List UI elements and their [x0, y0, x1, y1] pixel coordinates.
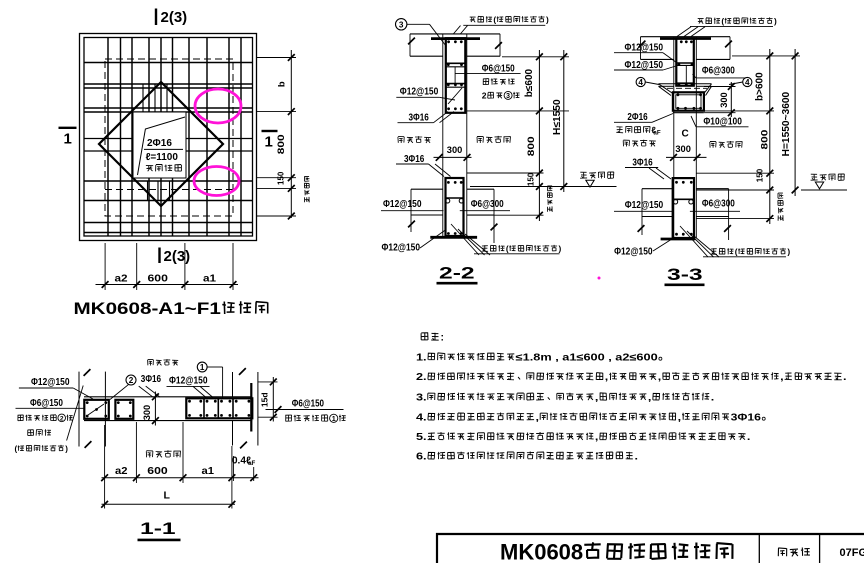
svg-text:,: ,	[605, 372, 609, 383]
svg-text:2-2: 2-2	[439, 264, 475, 283]
svg-text:): )	[559, 244, 562, 254]
svg-text:3-3: 3-3	[667, 265, 703, 284]
svg-text:3Φ16: 3Φ16	[632, 157, 653, 168]
svg-text:,: ,	[595, 432, 599, 443]
svg-text:,: ,	[648, 392, 652, 403]
svg-text:b: b	[276, 81, 287, 87]
svg-text:300: 300	[142, 405, 152, 421]
svg-text:3Φ16: 3Φ16	[731, 412, 762, 423]
svg-text:,: ,	[658, 372, 662, 383]
svg-text:Φ6@150: Φ6@150	[292, 399, 325, 410]
svg-text:.: .	[711, 392, 715, 403]
svg-text:C: C	[682, 129, 689, 140]
svg-text:2Φ16: 2Φ16	[627, 112, 648, 123]
svg-text:3Φ16: 3Φ16	[141, 374, 162, 385]
svg-text:Φ6@300: Φ6@300	[702, 199, 735, 210]
svg-text:L: L	[164, 490, 171, 502]
svg-text:MK0608: MK0608	[500, 540, 583, 563]
svg-text:2: 2	[60, 416, 64, 423]
svg-text:3: 3	[506, 93, 510, 100]
svg-text:(: (	[15, 444, 18, 453]
svg-text:07FG: 07FG	[840, 547, 864, 559]
svg-text:150: 150	[755, 168, 764, 182]
svg-text:≤1.8m , a1≤600 , a2≤600: ≤1.8m , a1≤600 , a2≤600	[516, 352, 659, 363]
svg-text:1: 1	[332, 414, 336, 423]
svg-text:(: (	[721, 16, 724, 26]
svg-text:a2: a2	[115, 466, 128, 477]
svg-text:(: (	[506, 244, 509, 254]
svg-text:aF: aF	[653, 130, 660, 137]
svg-text:Φ6@150: Φ6@150	[30, 398, 63, 409]
svg-text:aF: aF	[248, 460, 255, 467]
svg-text:,: ,	[678, 412, 682, 423]
svg-text:a2: a2	[115, 274, 129, 285]
svg-text:a1: a1	[203, 274, 217, 285]
svg-text:MK0608-A1~F1: MK0608-A1~F1	[74, 300, 221, 318]
svg-text:Φ6@300: Φ6@300	[471, 199, 504, 210]
svg-text:15d: 15d	[260, 392, 270, 407]
svg-text:): )	[65, 444, 68, 453]
svg-text:1: 1	[64, 131, 72, 148]
svg-text:b≤600: b≤600	[524, 68, 535, 97]
svg-text:Φ12@150: Φ12@150	[625, 43, 664, 54]
svg-text:2Φ16: 2Φ16	[147, 138, 172, 149]
svg-text:Φ12@150: Φ12@150	[169, 376, 208, 387]
svg-text:150: 150	[276, 171, 285, 185]
svg-text:.: .	[635, 451, 639, 462]
svg-text:2: 2	[482, 91, 487, 101]
svg-text:4: 4	[638, 78, 643, 87]
svg-text:b>600: b>600	[755, 72, 766, 101]
svg-text:Φ6@300: Φ6@300	[702, 66, 735, 77]
svg-text:Φ6@150: Φ6@150	[482, 64, 515, 75]
svg-text:150: 150	[526, 172, 535, 186]
svg-text:300: 300	[719, 92, 729, 108]
svg-text:600: 600	[147, 466, 168, 477]
svg-text:2: 2	[129, 376, 134, 385]
svg-text:4.: 4.	[416, 412, 427, 423]
svg-text:2(3): 2(3)	[161, 9, 188, 26]
svg-text:800: 800	[526, 136, 537, 156]
svg-text:3: 3	[399, 20, 404, 29]
svg-text:ℓ=1100: ℓ=1100	[146, 152, 179, 163]
svg-text:Φ12@150: Φ12@150	[31, 377, 70, 388]
svg-text::: :	[441, 332, 445, 344]
svg-text:Φ12@150: Φ12@150	[382, 243, 421, 254]
svg-text:1: 1	[200, 363, 205, 372]
svg-text:a1: a1	[202, 466, 215, 477]
svg-text:Φ12@150: Φ12@150	[614, 247, 653, 258]
svg-text:6.: 6.	[416, 451, 427, 462]
svg-text:,: ,	[595, 392, 599, 403]
svg-text:,: ,	[780, 372, 784, 383]
svg-text:3.: 3.	[416, 392, 427, 403]
svg-text:4: 4	[745, 78, 750, 87]
svg-text:Φ12@150: Φ12@150	[383, 199, 422, 210]
svg-text:): )	[546, 15, 549, 25]
svg-text:,: ,	[536, 412, 540, 423]
svg-text:2(3): 2(3)	[164, 248, 191, 265]
svg-text:.: .	[747, 432, 751, 443]
svg-text:.: .	[843, 372, 847, 383]
svg-text:800: 800	[759, 130, 770, 150]
svg-text:5.: 5.	[416, 432, 427, 443]
svg-text:300: 300	[675, 144, 691, 154]
svg-text:3Φ16: 3Φ16	[409, 113, 430, 124]
svg-text:2.: 2.	[416, 372, 427, 383]
svg-text:600: 600	[148, 274, 169, 285]
svg-text:Φ12@150: Φ12@150	[625, 200, 664, 211]
svg-text:(: (	[493, 15, 496, 25]
svg-text:1-1: 1-1	[140, 519, 176, 538]
svg-text:Φ12@150: Φ12@150	[625, 60, 664, 71]
svg-text:3Φ16: 3Φ16	[404, 154, 425, 165]
svg-text:800: 800	[276, 134, 287, 154]
svg-text:H=1550~3600: H=1550~3600	[781, 91, 792, 156]
svg-text:(: (	[735, 247, 738, 257]
svg-text:Φ10@100: Φ10@100	[703, 117, 742, 128]
svg-text:): )	[787, 247, 790, 257]
svg-text:H≤1550: H≤1550	[552, 99, 563, 135]
svg-text:300: 300	[447, 145, 463, 155]
svg-text:Φ12@150: Φ12@150	[400, 87, 439, 98]
svg-text:1.: 1.	[416, 352, 427, 363]
svg-text:): )	[774, 16, 777, 26]
svg-text:1: 1	[265, 134, 273, 151]
